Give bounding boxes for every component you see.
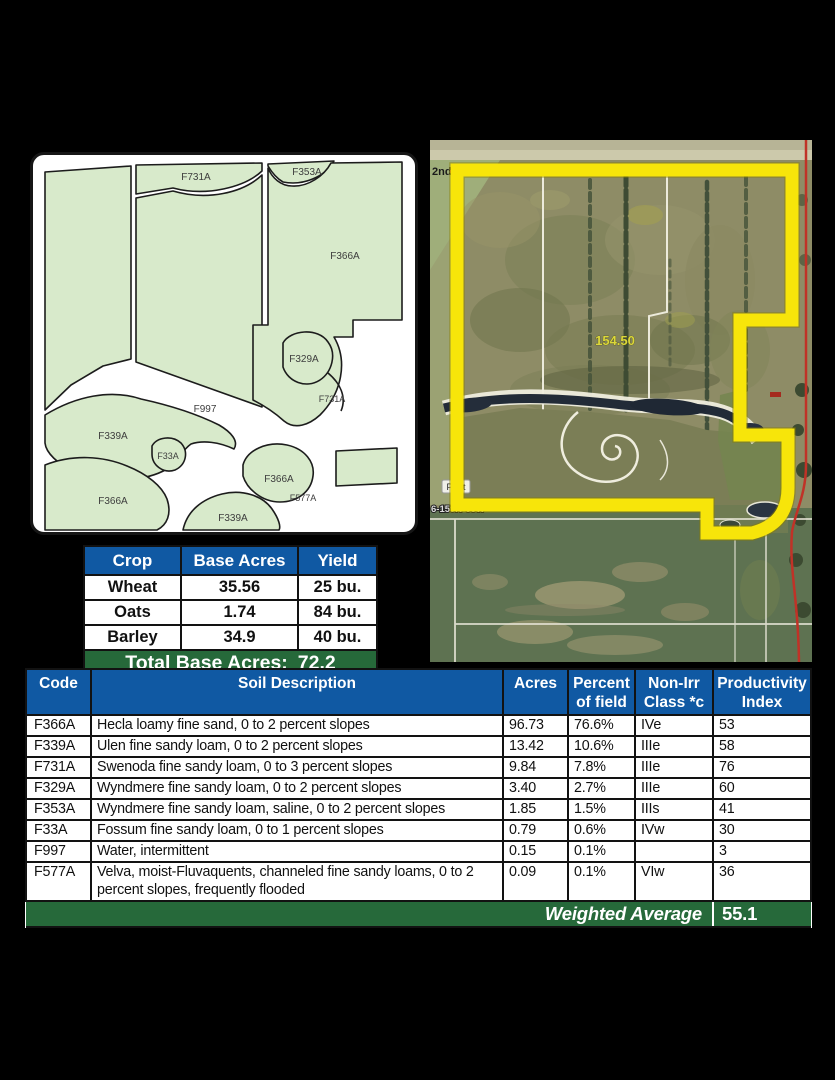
- yield-header: Yield: [298, 546, 377, 575]
- soil-acres: 0.79: [503, 820, 568, 841]
- aerial-photo: 2nd 82nd St N 154.50 Pratt 6-159N-65W: [430, 140, 812, 662]
- soil-code: F33A: [26, 820, 91, 841]
- soil-pi: 76: [713, 757, 811, 778]
- map-label-f577a: F577A: [290, 493, 317, 503]
- soil-description: Water, intermittent: [91, 841, 503, 862]
- crop-row-oats: Oats 1.74 84 bu.: [84, 600, 377, 625]
- soil-table-header-row: Code Soil Description Acres Percent of f…: [26, 669, 811, 715]
- crop-base-acres: 35.56: [181, 575, 298, 600]
- soil-row: F329A Wyndmere fine sandy loam, 0 to 2 p…: [26, 778, 811, 799]
- soil-description: Fossum fine sandy loam, 0 to 1 percent s…: [91, 820, 503, 841]
- soil-percent: 7.8%: [568, 757, 635, 778]
- soil-code: F577A: [26, 862, 91, 901]
- crop-base-acres: 34.9: [181, 625, 298, 650]
- crop-table-header-row: Crop Base Acres Yield: [84, 546, 377, 575]
- soil-class: IVe: [635, 715, 713, 736]
- soil-description: Velva, moist-Fluvaquents, channeled fine…: [91, 862, 503, 901]
- weighted-average-label: Weighted Average: [26, 901, 713, 927]
- soil-acres: 1.85: [503, 799, 568, 820]
- soil-description: Ulen fine sandy loam, 0 to 2 percent slo…: [91, 736, 503, 757]
- soil-pi: 3: [713, 841, 811, 862]
- crop-name: Oats: [84, 600, 181, 625]
- map-label-f366a-bl: F366A: [98, 496, 128, 507]
- soil-pi: 41: [713, 799, 811, 820]
- crop-yield: 84 bu.: [298, 600, 377, 625]
- soil-description: Hecla loamy fine sand, 0 to 2 percent sl…: [91, 715, 503, 736]
- soil-row: F997 Water, intermittent 0.15 0.1% 3: [26, 841, 811, 862]
- soil-class: IIIs: [635, 799, 713, 820]
- productivity-index-header: Productivity Index: [713, 669, 811, 715]
- code-header: Code: [26, 669, 91, 715]
- soil-row: F339A Ulen fine sandy loam, 0 to 2 perce…: [26, 736, 811, 757]
- soil-acres: 96.73: [503, 715, 568, 736]
- weighted-average-row: Weighted Average 55.1: [26, 901, 811, 927]
- soil-row: F33A Fossum fine sandy loam, 0 to 1 perc…: [26, 820, 811, 841]
- road-label-left: 2nd: [432, 166, 452, 178]
- crop-row-wheat: Wheat 35.56 25 bu.: [84, 575, 377, 600]
- soil-code: F339A: [26, 736, 91, 757]
- soil-description: Swenoda fine sandy loam, 0 to 3 percent …: [91, 757, 503, 778]
- soil-class: IVw: [635, 820, 713, 841]
- map-label-f339a-b: F339A: [218, 513, 248, 524]
- soil-acres: 0.09: [503, 862, 568, 901]
- map-field: [45, 166, 131, 410]
- crop-base-acres: 1.74: [181, 600, 298, 625]
- map-field: [253, 162, 402, 426]
- soil-row: F353A Wyndmere fine sandy loam, saline, …: [26, 799, 811, 820]
- soil-percent: 0.1%: [568, 862, 635, 901]
- soil-row: F366A Hecla loamy fine sand, 0 to 2 perc…: [26, 715, 811, 736]
- soil-description: Wyndmere fine sandy loam, saline, 0 to 2…: [91, 799, 503, 820]
- soil-percent: 2.7%: [568, 778, 635, 799]
- soil-pi: 36: [713, 862, 811, 901]
- crop-yield: 40 bu.: [298, 625, 377, 650]
- soil-pi: 30: [713, 820, 811, 841]
- soil-class: IIIe: [635, 736, 713, 757]
- soil-percent: 76.6%: [568, 715, 635, 736]
- farm-building: [770, 392, 781, 397]
- acreage-label: 154.50: [595, 333, 635, 348]
- crop-name: Wheat: [84, 575, 181, 600]
- crop-name: Barley: [84, 625, 181, 650]
- aerial-photo-panel: 2nd 82nd St N 154.50 Pratt 6-159N-65W: [430, 140, 812, 662]
- map-label-f339a: F339A: [98, 431, 128, 442]
- weighted-average-value: 55.1: [713, 901, 811, 927]
- soil-percent: 0.6%: [568, 820, 635, 841]
- percent-of-field-header: Percent of field: [568, 669, 635, 715]
- map-label-f997: F997: [194, 404, 217, 415]
- crop-header: Crop: [84, 546, 181, 575]
- crop-row-barley: Barley 34.9 40 bu.: [84, 625, 377, 650]
- map-label-f366a-right: F366A: [330, 251, 360, 262]
- soil-class: IIIe: [635, 757, 713, 778]
- soil-class: VIw: [635, 862, 713, 901]
- soil-acres: 9.84: [503, 757, 568, 778]
- map-field: [336, 448, 397, 486]
- non-irr-class-header: Non-Irr Class *c: [635, 669, 713, 715]
- soil-row: F731A Swenoda fine sandy loam, 0 to 3 pe…: [26, 757, 811, 778]
- soil-acres: 0.15: [503, 841, 568, 862]
- soil-acres: 13.42: [503, 736, 568, 757]
- map-label-f33a: F33A: [157, 451, 179, 461]
- map-label-f366a-c: F366A: [264, 474, 294, 485]
- soil-class: IIIe: [635, 778, 713, 799]
- soil-map-panel: F731A F353A F366A F329A F731A F997 F339A…: [30, 152, 418, 535]
- base-acres-header: Base Acres: [181, 546, 298, 575]
- soil-code: F997: [26, 841, 91, 862]
- soil-code: F353A: [26, 799, 91, 820]
- soil-description-header: Soil Description: [91, 669, 503, 715]
- soil-acres: 3.40: [503, 778, 568, 799]
- soil-class: [635, 841, 713, 862]
- map-field: [136, 175, 262, 407]
- soil-percent: 10.6%: [568, 736, 635, 757]
- soil-code: F731A: [26, 757, 91, 778]
- map-label-f329a: F329A: [289, 354, 319, 365]
- crop-yield: 25 bu.: [298, 575, 377, 600]
- soil-map-drawing: F731A F353A F366A F329A F731A F997 F339A…: [33, 155, 415, 532]
- soil-percent: 1.5%: [568, 799, 635, 820]
- crop-table: Crop Base Acres Yield Wheat 35.56 25 bu.…: [83, 545, 378, 677]
- map-label-f731a-2: F731A: [319, 394, 346, 404]
- soil-code: F329A: [26, 778, 91, 799]
- soil-table: Code Soil Description Acres Percent of f…: [25, 668, 812, 928]
- map-label-f353a: F353A: [292, 167, 322, 178]
- acres-header: Acres: [503, 669, 568, 715]
- soil-row: F577A Velva, moist-Fluvaquents, channele…: [26, 862, 811, 901]
- soil-pi: 58: [713, 736, 811, 757]
- soil-pi: 53: [713, 715, 811, 736]
- soil-pi: 60: [713, 778, 811, 799]
- soil-code: F366A: [26, 715, 91, 736]
- soil-description: Wyndmere fine sandy loam, 0 to 2 percent…: [91, 778, 503, 799]
- soil-percent: 0.1%: [568, 841, 635, 862]
- map-label-f731a: F731A: [181, 172, 211, 183]
